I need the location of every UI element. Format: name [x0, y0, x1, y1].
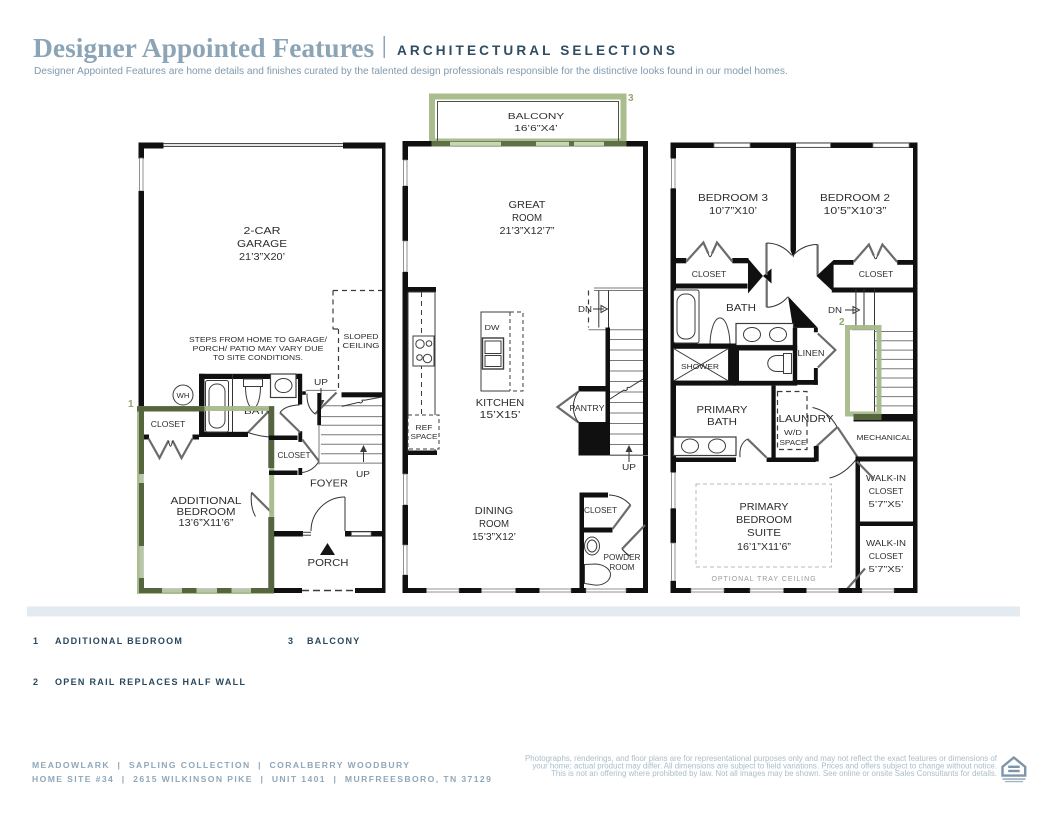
svg-text:POWDER: POWDER — [604, 552, 641, 562]
svg-text:ROOM: ROOM — [610, 562, 635, 572]
svg-text:GARAGE: GARAGE — [237, 239, 287, 250]
svg-text:ROOM: ROOM — [479, 519, 509, 530]
svg-text:15’3”X12’: 15’3”X12’ — [472, 532, 516, 543]
svg-text:STEPS FROM HOME TO GARAGE/: STEPS FROM HOME TO GARAGE/ — [189, 335, 328, 344]
svg-text:21’3”X20’: 21’3”X20’ — [239, 252, 285, 263]
svg-text:GREAT: GREAT — [509, 200, 547, 211]
svg-text:DN: DN — [578, 304, 592, 314]
svg-text:PRIMARY: PRIMARY — [697, 405, 748, 416]
svg-text:WH: WH — [177, 391, 190, 400]
svg-text:UP: UP — [622, 462, 636, 472]
svg-text:MECHANICAL: MECHANICAL — [857, 433, 912, 442]
svg-text:PORCH/ PATIO MAY VARY DUE: PORCH/ PATIO MAY VARY DUE — [193, 344, 324, 353]
svg-text:OPTIONAL TRAY CEILING: OPTIONAL TRAY CEILING — [712, 574, 817, 583]
svg-text:5’7”X5’: 5’7”X5’ — [869, 564, 904, 574]
svg-text:BEDROOM 2: BEDROOM 2 — [820, 193, 890, 204]
svg-text:LINEN: LINEN — [798, 348, 825, 358]
svg-text:CLOSET: CLOSET — [278, 450, 312, 460]
svg-text:1: 1 — [33, 636, 39, 646]
svg-text:WALK-IN: WALK-IN — [866, 538, 906, 548]
svg-text:10’7”X10’: 10’7”X10’ — [709, 206, 757, 217]
svg-text:PANTRY: PANTRY — [570, 403, 605, 413]
svg-text:10’5”X10’3”: 10’5”X10’3” — [824, 206, 888, 217]
svg-text:FOYER: FOYER — [310, 479, 349, 490]
svg-text:CLOSET: CLOSET — [869, 486, 904, 496]
svg-text:SHOWER: SHOWER — [681, 362, 719, 371]
svg-text:15’X15’: 15’X15’ — [480, 410, 521, 421]
svg-text:BEDROOM 3: BEDROOM 3 — [698, 193, 768, 204]
svg-text:MEADOWLARK | SAPLING COLLECT: MEADOWLARK | SAPLING COLLECTION | CORALB… — [32, 760, 410, 770]
svg-text:BATH: BATH — [707, 417, 737, 428]
svg-text:SPACE: SPACE — [411, 432, 438, 441]
svg-text:HOME SITE #34 | 2615 WILKINS: HOME SITE #34 | 2615 WILKINSON PIKE | UN… — [32, 774, 492, 784]
svg-text:ADDITIONAL BEDROOM: ADDITIONAL BEDROOM — [55, 636, 183, 646]
svg-text:OPEN RAIL REPLACES HALF WALL: OPEN RAIL REPLACES HALF WALL — [55, 677, 246, 687]
svg-text:BEDROOM: BEDROOM — [177, 507, 236, 518]
svg-text:16’6”X4’: 16’6”X4’ — [514, 123, 558, 133]
svg-text:ARCHITECTURAL SELECTIONS: ARCHITECTURAL SELECTIONS — [397, 43, 678, 58]
svg-text:LAUNDRY: LAUNDRY — [779, 414, 834, 425]
svg-text:Designer Appointed Features: Designer Appointed Features — [33, 32, 375, 63]
svg-text:SUITE: SUITE — [747, 528, 781, 539]
svg-text:CLOSET: CLOSET — [151, 419, 186, 429]
svg-text:16’1”X11’6”: 16’1”X11’6” — [737, 542, 792, 553]
svg-text:W/D: W/D — [784, 428, 802, 437]
svg-text:UP: UP — [356, 469, 370, 479]
svg-text:2: 2 — [839, 317, 845, 328]
svg-text:SPACE: SPACE — [780, 438, 807, 447]
svg-text:SLOPED: SLOPED — [344, 332, 379, 341]
svg-text:PORCH: PORCH — [308, 558, 349, 569]
svg-text:UP: UP — [314, 377, 328, 387]
svg-text:TO SITE CONDITIONS.: TO SITE CONDITIONS. — [213, 353, 303, 362]
svg-text:CLOSET: CLOSET — [859, 269, 894, 279]
svg-text:DINING: DINING — [475, 506, 514, 517]
svg-text:5’7”X5’: 5’7”X5’ — [869, 499, 904, 509]
svg-text:CEILING: CEILING — [343, 341, 380, 350]
svg-text:CLOSET: CLOSET — [584, 505, 618, 515]
svg-text:REF: REF — [416, 423, 434, 432]
svg-text:ROOM: ROOM — [512, 213, 542, 224]
svg-text:This is not an offering where: This is not an offering where prohibited… — [551, 769, 997, 778]
svg-text:KITCHEN: KITCHEN — [476, 398, 525, 409]
svg-text:2-CAR: 2-CAR — [244, 226, 282, 237]
svg-text:2: 2 — [33, 677, 39, 687]
svg-text:PRIMARY: PRIMARY — [740, 502, 789, 513]
svg-text:BALCONY: BALCONY — [508, 111, 565, 121]
svg-text:Designer Appointed Features ar: Designer Appointed Features are home det… — [34, 66, 788, 77]
svg-text:1: 1 — [128, 399, 134, 410]
svg-text:3: 3 — [628, 93, 634, 104]
svg-text:DW: DW — [485, 323, 500, 332]
svg-text:3: 3 — [288, 636, 294, 646]
svg-text:BALCONY: BALCONY — [307, 636, 361, 646]
svg-text:CLOSET: CLOSET — [692, 269, 727, 279]
svg-text:21’3”X12’7”: 21’3”X12’7” — [500, 226, 556, 237]
svg-text:BATH: BATH — [726, 303, 756, 314]
svg-text:DN: DN — [828, 305, 842, 315]
svg-text:13’6”X11’6”: 13’6”X11’6” — [179, 518, 235, 529]
svg-text:CLOSET: CLOSET — [869, 551, 904, 561]
svg-text:BEDROOM: BEDROOM — [736, 515, 792, 526]
svg-text:ADDITIONAL: ADDITIONAL — [171, 496, 242, 507]
